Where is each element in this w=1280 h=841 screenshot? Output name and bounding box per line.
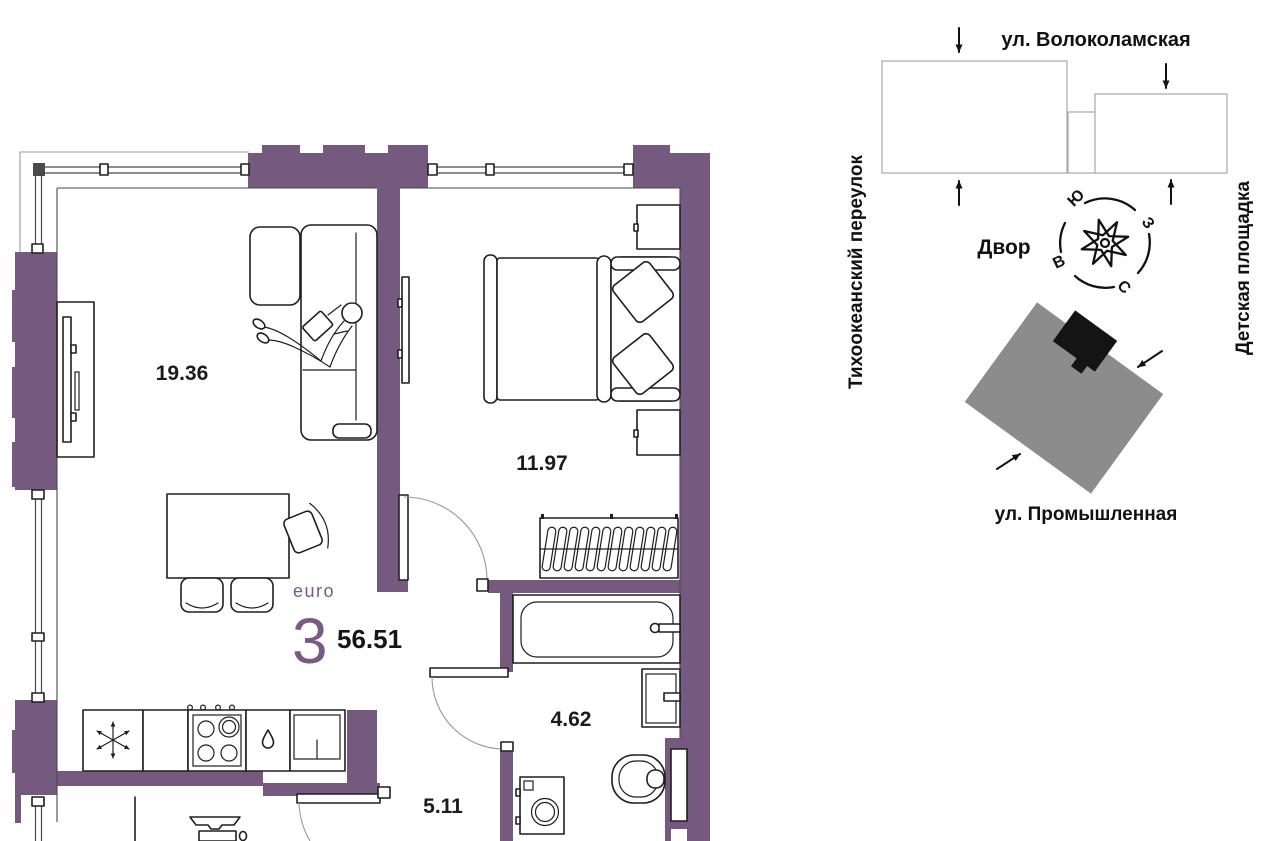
street-top-label: ул. Волоколамская	[1001, 29, 1190, 51]
bedroom-area-label: 11.97	[516, 452, 567, 475]
compass-south: Ю	[1065, 187, 1089, 211]
wardrobe-icon	[540, 514, 678, 578]
courtyard-label: Двор	[977, 236, 1030, 259]
tv-unit-icon	[57, 302, 94, 457]
area-right-label: Детская площадка	[1233, 181, 1254, 355]
bathroom-area-label: 4.62	[551, 708, 592, 731]
counter-cabinet	[143, 710, 188, 771]
bed-icon	[484, 255, 680, 403]
entrance-door-leaf	[297, 794, 380, 803]
washing-machine-icon	[516, 777, 564, 834]
floor-plan: 19.36 11.97 4.62 5.11 euro 3 56.51	[12, 145, 710, 841]
compass-north: С	[1114, 277, 1135, 298]
compass-icon: Ю З В С	[1050, 187, 1157, 298]
building-connector	[1068, 112, 1096, 173]
total-area: 56.51	[337, 624, 402, 654]
desk-icon	[190, 817, 247, 841]
bathroom-door-leaf	[430, 668, 508, 677]
living-area-label: 19.36	[156, 362, 209, 385]
vent-shaft	[671, 749, 687, 821]
floorplan-canvas: 19.36 11.97 4.62 5.11 euro 3 56.51	[0, 0, 1280, 841]
kitchen-icons	[83, 705, 345, 771]
bathroom-sink-icon	[642, 669, 680, 727]
hallway-area-label: 5.11	[423, 795, 463, 818]
street-left-label: Тихоокеанский переулок	[846, 155, 867, 389]
format-label: euro	[293, 581, 335, 601]
building-b	[1095, 94, 1227, 173]
building-a	[882, 61, 1067, 173]
stool-icon	[231, 578, 273, 612]
apartment-type-badge: euro 3 56.51	[292, 581, 402, 677]
compass-east: В	[1050, 252, 1068, 272]
window-corner-joint	[33, 163, 45, 176]
compass-west: З	[1138, 214, 1158, 232]
rooms-count: 3	[292, 605, 328, 677]
stove-icon	[188, 710, 246, 771]
site-plan: Ю З В С ул. Волоколамская Тихоокеанский …	[846, 28, 1254, 525]
bedroom-door-leaf	[399, 495, 408, 580]
toilet-icon	[612, 755, 665, 803]
project-building	[965, 302, 1164, 493]
sink-cabinet-icon	[290, 710, 345, 771]
street-bottom-label: ул. Промышленная	[995, 504, 1178, 525]
bathtub-icon	[513, 595, 680, 663]
stool-icon	[181, 578, 223, 612]
floorplan-page: 19.36 11.97 4.62 5.11 euro 3 56.51	[0, 0, 1280, 841]
